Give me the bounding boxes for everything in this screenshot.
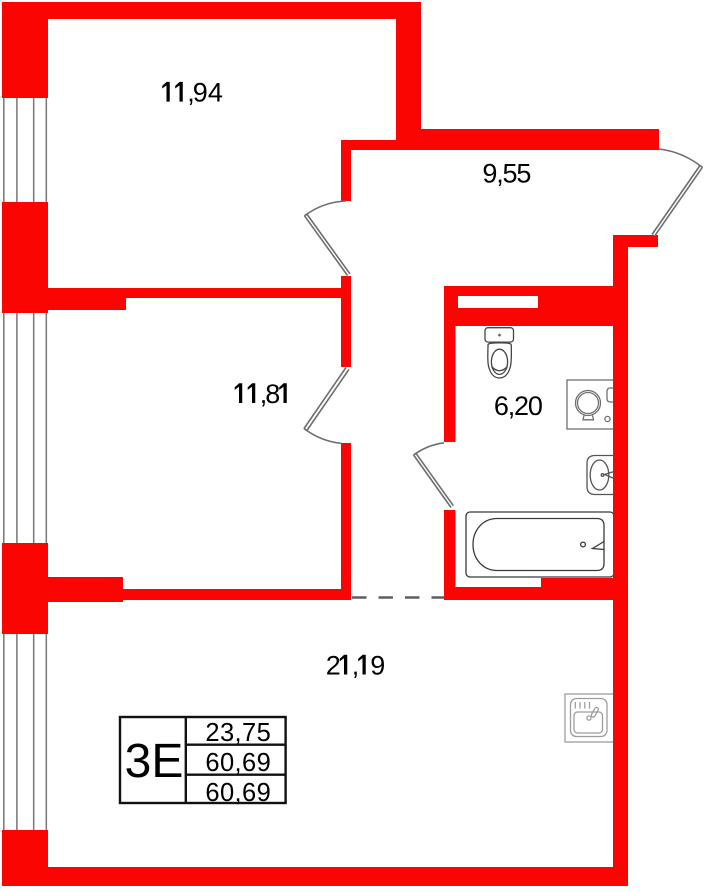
svg-text:23,75: 23,75 — [205, 719, 271, 747]
svg-text:6,20: 6,20 — [494, 391, 542, 421]
svg-text:94: 94 — [193, 78, 223, 108]
svg-text:9: 9 — [370, 651, 385, 681]
svg-text:60,69: 60,69 — [205, 779, 271, 807]
svg-text:8: 8 — [265, 379, 280, 409]
svg-text:60,69: 60,69 — [205, 749, 271, 777]
svg-text:,: , — [352, 651, 360, 681]
svg-text:9,55: 9,55 — [482, 159, 530, 189]
svg-text:3Е: 3Е — [125, 735, 184, 788]
svg-text:2: 2 — [326, 651, 341, 681]
